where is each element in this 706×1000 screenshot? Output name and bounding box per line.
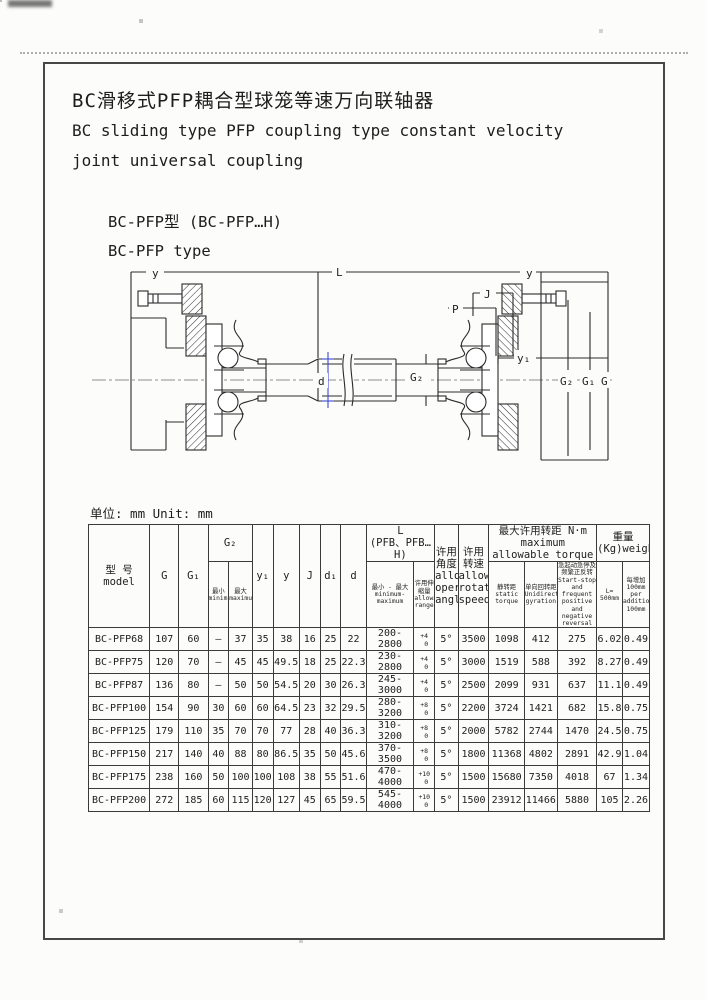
value-cell: +40 [414, 674, 435, 697]
scan-smudge [8, 0, 52, 7]
value-cell: 25 [320, 651, 341, 674]
value-cell: +80 [414, 697, 435, 720]
model-type-block: BC-PFP型 (BC-PFP…H) BC-PFP type [108, 208, 282, 266]
model-cell: BC-PFP125 [89, 720, 150, 743]
value-cell: 127 [273, 789, 299, 812]
value-cell: 11368 [489, 743, 524, 766]
value-cell: 23 [299, 697, 320, 720]
dim-label-g: G [601, 375, 608, 388]
model-cell: BC-PFP150 [89, 743, 150, 766]
value-cell: — [208, 674, 229, 697]
dim-label-g2-shaft: G₂ [410, 371, 423, 384]
dim-label-g1: G₁ [582, 375, 595, 388]
value-cell: 36.3 [341, 720, 366, 743]
value-cell: 310-3200 [366, 720, 414, 743]
col-header-y1: y₁ [252, 525, 273, 628]
value-cell: 136 [150, 674, 179, 697]
value-cell: 70 [252, 720, 273, 743]
value-cell: 280-3200 [366, 697, 414, 720]
table-row: BC-PFP1001549030606064.5233229.5280-3200… [89, 697, 650, 720]
model-type-zh: BC-PFP型 (BC-PFP…H) [108, 208, 282, 237]
value-cell: 8.27 [597, 651, 623, 674]
value-cell: 100 [252, 766, 273, 789]
dim-label-l: L [336, 266, 343, 279]
value-cell: 26.3 [341, 674, 366, 697]
value-cell: 80 [252, 743, 273, 766]
value-cell: 80 [179, 674, 208, 697]
value-cell: 51.6 [341, 766, 366, 789]
value-cell: 37 [229, 628, 253, 651]
value-cell: 1800 [458, 743, 489, 766]
value-cell: 50 [320, 743, 341, 766]
col-header-torque-unidirectional: 单向回转距 Unidirectional gyration [524, 562, 557, 628]
value-cell: 931 [524, 674, 557, 697]
value-cell: 140 [179, 743, 208, 766]
value-cell: 5° [435, 651, 459, 674]
table-row: BC-PFP8713680—505054.5203026.3245-3000+4… [89, 674, 650, 697]
value-cell: 160 [179, 766, 208, 789]
value-cell: 5° [435, 766, 459, 789]
col-header-weight-per100: 每增加 100mm per additional 100mm [622, 562, 649, 628]
value-cell: 2500 [458, 674, 489, 697]
value-cell: 2.26 [622, 789, 649, 812]
col-header-l-minmax: 最小 - 最大 minimum-maximum [366, 562, 414, 628]
unit-note: 单位: mm Unit: mm [90, 503, 213, 522]
table-row: BC-PFP6810760—373538162522200-2800+405°3… [89, 628, 650, 651]
value-cell: 185 [179, 789, 208, 812]
value-cell: 105 [597, 789, 623, 812]
spec-table: 型 号 model G G₁ G₂ y₁ y J d₁ d L (PFB、PFB… [88, 524, 650, 812]
value-cell: 272 [150, 789, 179, 812]
value-cell: 55 [320, 766, 341, 789]
value-cell: 5° [435, 743, 459, 766]
value-cell: 45 [252, 651, 273, 674]
value-cell: 38 [299, 766, 320, 789]
scan-artifact-line [20, 52, 688, 54]
dim-label-y1: y₁ [517, 352, 530, 365]
value-cell: 45 [299, 789, 320, 812]
value-cell: 18 [299, 651, 320, 674]
col-header-torque-startstop: 急起动急停及频繁正反转 Start-stop and frequent posi… [557, 562, 596, 628]
value-cell: 11.1 [597, 674, 623, 697]
value-cell: 5° [435, 674, 459, 697]
value-cell: 217 [150, 743, 179, 766]
value-cell: 35 [208, 720, 229, 743]
value-cell: 45.6 [341, 743, 366, 766]
value-cell: 2099 [489, 674, 524, 697]
dim-label-j: J [484, 288, 491, 301]
col-header-g2-group: G₂ [208, 525, 252, 562]
model-cell: BC-PFP75 [89, 651, 150, 674]
value-cell: 4802 [524, 743, 557, 766]
value-cell: 40 [320, 720, 341, 743]
value-cell: 3000 [458, 651, 489, 674]
value-cell: 28 [299, 720, 320, 743]
value-cell: 7350 [524, 766, 557, 789]
value-cell: 38 [273, 628, 299, 651]
col-header-y: y [273, 525, 299, 628]
value-cell: 588 [524, 651, 557, 674]
value-cell: 40 [208, 743, 229, 766]
value-cell: 5° [435, 628, 459, 651]
col-header-weight-group: 重量 (Kg)weight [597, 525, 650, 562]
value-cell: 115 [229, 789, 253, 812]
value-cell: 0.75 [622, 697, 649, 720]
page-title-en-line1: BC sliding type PFP coupling type consta… [72, 116, 563, 146]
table-row: BC-PFP7512070—454549.5182522.3230-2800+4… [89, 651, 650, 674]
value-cell: 60 [179, 628, 208, 651]
value-cell: 90 [179, 697, 208, 720]
value-cell: 30 [208, 697, 229, 720]
technical-drawing: y L y J P y₁ d G₂ G₂ G₁ G [86, 260, 618, 465]
col-header-l-range: 许用伸缩量 allowable range [414, 562, 435, 628]
value-cell: 22 [341, 628, 366, 651]
value-cell: 1098 [489, 628, 524, 651]
page-title-en-line2: joint universal coupling [72, 146, 563, 176]
value-cell: 230-2800 [366, 651, 414, 674]
value-cell: +40 [414, 628, 435, 651]
col-header-g: G [150, 525, 179, 628]
model-cell: BC-PFP175 [89, 766, 150, 789]
value-cell: 5880 [557, 789, 596, 812]
value-cell: 470-4000 [366, 766, 414, 789]
value-cell: 100 [229, 766, 253, 789]
value-cell: 107 [150, 628, 179, 651]
value-cell: 154 [150, 697, 179, 720]
value-cell: 88 [229, 743, 253, 766]
dim-label-d: d [318, 375, 325, 388]
col-header-d: d [341, 525, 366, 628]
value-cell: 35 [299, 743, 320, 766]
value-cell: 23912 [489, 789, 524, 812]
value-cell: 29.5 [341, 697, 366, 720]
table-row: BC-PFP12517911035707077284036.3310-3200+… [89, 720, 650, 743]
value-cell: 20 [299, 674, 320, 697]
value-cell: +80 [414, 720, 435, 743]
value-cell: 24.5 [597, 720, 623, 743]
value-cell: 120 [252, 789, 273, 812]
col-header-angle: 许用角度 allowable operation angle [435, 525, 459, 628]
dim-label-p: P [452, 303, 459, 316]
value-cell: 120 [150, 651, 179, 674]
value-cell: 370-3500 [366, 743, 414, 766]
value-cell: 15.8 [597, 697, 623, 720]
value-cell: 0.49 [622, 674, 649, 697]
value-cell: 0.75 [622, 720, 649, 743]
value-cell: 5° [435, 720, 459, 743]
col-header-g1: G₁ [179, 525, 208, 628]
value-cell: 50 [208, 766, 229, 789]
value-cell: 50 [229, 674, 253, 697]
value-cell: 2744 [524, 720, 557, 743]
col-header-torque-static: 静转距 static torque [489, 562, 524, 628]
value-cell: 0.49 [622, 651, 649, 674]
value-cell: 1.34 [622, 766, 649, 789]
value-cell: 60 [208, 789, 229, 812]
value-cell: 70 [179, 651, 208, 674]
table-row: BC-PFP15021714040888086.5355045.6370-350… [89, 743, 650, 766]
value-cell: 11466 [524, 789, 557, 812]
model-cell: BC-PFP100 [89, 697, 150, 720]
value-cell: 179 [150, 720, 179, 743]
value-cell: 2891 [557, 743, 596, 766]
value-cell: 64.5 [273, 697, 299, 720]
value-cell: 30 [320, 674, 341, 697]
value-cell: 42.9 [597, 743, 623, 766]
col-header-weight-l500: L= 500mm [597, 562, 623, 628]
value-cell: 2000 [458, 720, 489, 743]
value-cell: 67 [597, 766, 623, 789]
value-cell: 6.02 [597, 628, 623, 651]
value-cell: 1500 [458, 766, 489, 789]
value-cell: +100 [414, 766, 435, 789]
col-header-g2-max: 最大 maximum [229, 562, 253, 628]
value-cell: 15680 [489, 766, 524, 789]
value-cell: +100 [414, 789, 435, 812]
table-row: BC-PFP17523816050100100108385551.6470-40… [89, 766, 650, 789]
value-cell: 110 [179, 720, 208, 743]
col-header-model: 型 号 model [89, 525, 150, 628]
value-cell: 1.04 [622, 743, 649, 766]
value-cell: — [208, 628, 229, 651]
value-cell: 32 [320, 697, 341, 720]
col-header-j: J [299, 525, 320, 628]
col-header-g2-min: 最小 minimum [208, 562, 229, 628]
col-header-l-group: L (PFB、PFB…H) [366, 525, 434, 562]
model-cell: BC-PFP200 [89, 789, 150, 812]
value-cell: 200-2800 [366, 628, 414, 651]
value-cell: 45 [229, 651, 253, 674]
value-cell: 412 [524, 628, 557, 651]
table-row: BC-PFP20027218560115120127456559.5545-40… [89, 789, 650, 812]
value-cell: 25 [320, 628, 341, 651]
col-header-speed: 许用转速 allowable rotation speed [458, 525, 489, 628]
value-cell: 1500 [458, 789, 489, 812]
value-cell: 108 [273, 766, 299, 789]
value-cell: 637 [557, 674, 596, 697]
value-cell: 60 [229, 697, 253, 720]
value-cell: 682 [557, 697, 596, 720]
dim-label-y-right: y [526, 267, 533, 280]
value-cell: 35 [252, 628, 273, 651]
value-cell: 5782 [489, 720, 524, 743]
value-cell: 2200 [458, 697, 489, 720]
value-cell: 275 [557, 628, 596, 651]
col-header-d1: d₁ [320, 525, 341, 628]
value-cell: 22.3 [341, 651, 366, 674]
value-cell: 5° [435, 697, 459, 720]
value-cell: 0.49 [622, 628, 649, 651]
value-cell: 16 [299, 628, 320, 651]
dim-label-g2: G₂ [560, 375, 573, 388]
value-cell: 5° [435, 789, 459, 812]
value-cell: 49.5 [273, 651, 299, 674]
value-cell: 245-3000 [366, 674, 414, 697]
value-cell: 3500 [458, 628, 489, 651]
value-cell: 60 [252, 697, 273, 720]
value-cell: 392 [557, 651, 596, 674]
model-cell: BC-PFP87 [89, 674, 150, 697]
value-cell: 238 [150, 766, 179, 789]
col-header-torque-group: 最大许用转距 N·m maximum allowable torque [489, 525, 597, 562]
value-cell: 70 [229, 720, 253, 743]
value-cell: 545-4000 [366, 789, 414, 812]
value-cell: 3724 [489, 697, 524, 720]
value-cell: 86.5 [273, 743, 299, 766]
title-block: BC滑移式PFP耦合型球笼等速万向联轴器 BC sliding type PFP… [72, 86, 563, 176]
scan-specks [0, 0, 2, 2]
value-cell: 65 [320, 789, 341, 812]
value-cell: 1470 [557, 720, 596, 743]
value-cell: 1421 [524, 697, 557, 720]
spec-table-body: BC-PFP6810760—373538162522200-2800+405°3… [89, 628, 650, 812]
value-cell: 77 [273, 720, 299, 743]
dim-label-y-left: y [152, 267, 159, 280]
value-cell: 54.5 [273, 674, 299, 697]
left-joint [138, 284, 308, 450]
value-cell: 50 [252, 674, 273, 697]
value-cell: +80 [414, 743, 435, 766]
model-cell: BC-PFP68 [89, 628, 150, 651]
value-cell: 4018 [557, 766, 596, 789]
page-title-zh: BC滑移式PFP耦合型球笼等速万向联轴器 [72, 86, 563, 116]
value-cell: 59.5 [341, 789, 366, 812]
value-cell: — [208, 651, 229, 674]
value-cell: 1519 [489, 651, 524, 674]
value-cell: +40 [414, 651, 435, 674]
right-nested-box [541, 282, 608, 460]
catalog-page: BC滑移式PFP耦合型球笼等速万向联轴器 BC sliding type PFP… [0, 0, 706, 1000]
